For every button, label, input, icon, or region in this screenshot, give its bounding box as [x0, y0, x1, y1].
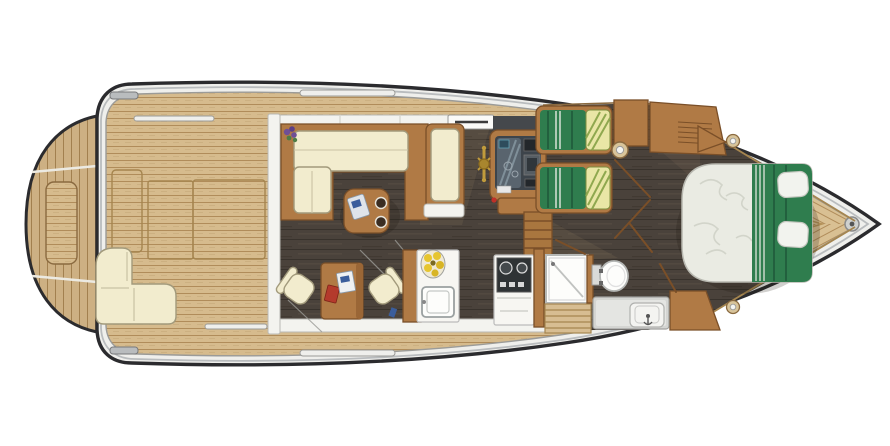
boat-floorplan-page [0, 0, 890, 446]
island-double-bed [682, 164, 812, 282]
side-cabinet [614, 100, 648, 146]
swim-platform [26, 116, 97, 332]
boat-floorplan [0, 0, 890, 446]
dinette-table [321, 263, 363, 319]
shower [546, 255, 588, 303]
aft-bulkhead [268, 114, 280, 334]
wardrobe [650, 102, 726, 155]
platform-step-box [46, 182, 77, 264]
flower-bowl [421, 250, 445, 278]
twin-berth-lower [536, 163, 612, 213]
galley-sink-unit [403, 250, 459, 322]
twin-berth-upper [536, 106, 612, 154]
vanity-sink [593, 297, 669, 329]
chaise-lounge [424, 124, 464, 217]
galley-stove [494, 255, 534, 325]
steps-down [545, 304, 591, 333]
galley-head-wall [534, 249, 544, 327]
